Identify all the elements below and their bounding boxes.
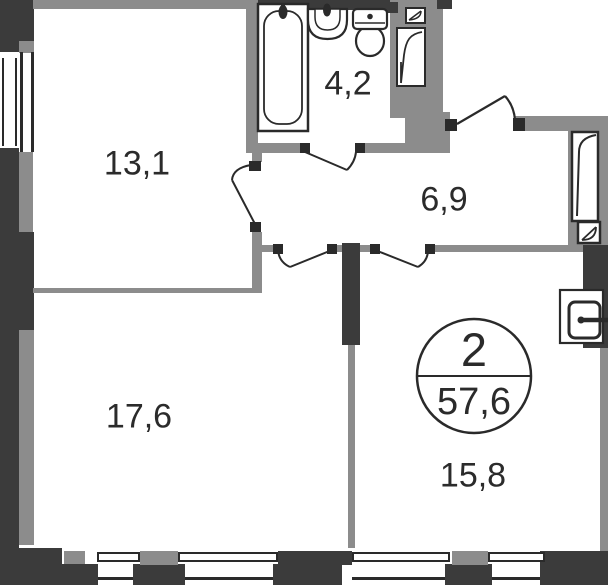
sink-icon xyxy=(308,4,347,40)
room-area-label: 6,9 xyxy=(420,181,467,220)
room-area-label: 4,2 xyxy=(324,65,371,104)
vent-shaft-icon xyxy=(572,132,600,243)
entry-door-icon xyxy=(457,96,515,124)
total-area: 57,6 xyxy=(437,381,511,423)
room-area-label: 15,8 xyxy=(440,457,506,496)
rooms-count: 2 xyxy=(461,323,487,376)
door-swing-icon xyxy=(232,152,428,267)
vent-shaft-icon xyxy=(397,8,425,86)
toilet-icon xyxy=(353,9,387,56)
room-area-label: 17,6 xyxy=(106,398,172,437)
floor-plan: 2 57,6 13,1 4,2 6,9 17,6 15,8 xyxy=(0,0,608,585)
bathtub-icon xyxy=(258,4,308,131)
apartment-summary-badge: 2 57,6 xyxy=(417,319,531,433)
electrical-panel-icon xyxy=(560,290,608,343)
plan-graphics: 2 57,6 xyxy=(0,0,608,585)
room-area-label: 13,1 xyxy=(104,145,170,184)
